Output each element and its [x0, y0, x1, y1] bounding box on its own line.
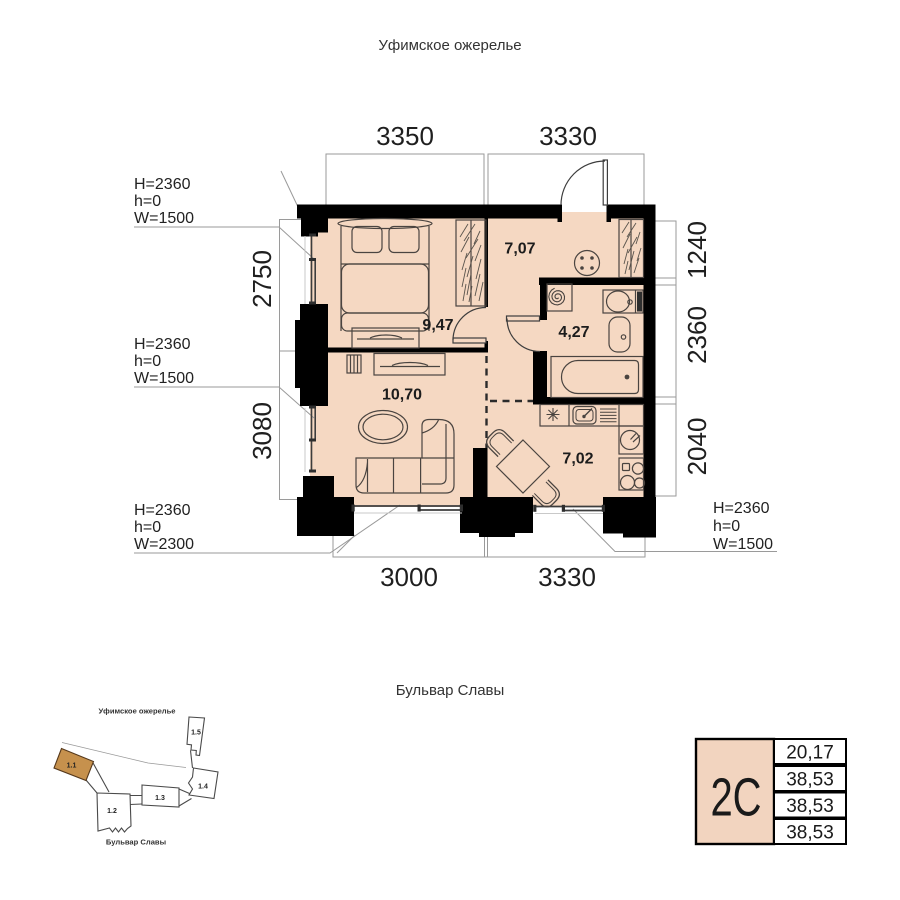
- svg-text:1.4: 1.4: [198, 784, 208, 791]
- svg-text:3330: 3330: [538, 562, 596, 592]
- svg-text:Уфимское ожерелье: Уфимское ожерелье: [378, 37, 521, 54]
- svg-text:h=0: h=0: [134, 193, 161, 210]
- svg-text:H=2360: H=2360: [134, 502, 191, 519]
- svg-text:Уфимское ожерелье: Уфимское ожерелье: [98, 707, 175, 716]
- svg-text:h=0: h=0: [713, 518, 740, 535]
- svg-text:W=1500: W=1500: [713, 536, 773, 553]
- svg-text:7,07: 7,07: [504, 241, 535, 258]
- svg-text:2750: 2750: [247, 250, 277, 308]
- svg-text:2040: 2040: [682, 418, 712, 476]
- svg-text:h=0: h=0: [134, 353, 161, 370]
- svg-text:2360: 2360: [682, 306, 712, 364]
- svg-text:38,53: 38,53: [786, 770, 834, 791]
- svg-text:1240: 1240: [682, 221, 712, 279]
- svg-text:4,27: 4,27: [558, 324, 589, 341]
- svg-text:9,47: 9,47: [422, 317, 453, 334]
- svg-text:10,70: 10,70: [382, 387, 422, 404]
- svg-text:1.1: 1.1: [67, 763, 77, 770]
- svg-text:1.3: 1.3: [155, 795, 165, 802]
- svg-text:H=2360: H=2360: [713, 500, 770, 517]
- svg-text:1.5: 1.5: [191, 730, 201, 737]
- svg-text:20,17: 20,17: [786, 743, 834, 764]
- svg-text:38,53: 38,53: [786, 823, 834, 844]
- svg-text:38,53: 38,53: [786, 796, 834, 817]
- svg-text:3000: 3000: [380, 562, 438, 592]
- svg-text:3080: 3080: [247, 402, 277, 460]
- svg-text:3330: 3330: [539, 121, 597, 151]
- svg-text:W=1500: W=1500: [134, 210, 194, 227]
- svg-text:1.2: 1.2: [107, 808, 117, 815]
- svg-text:H=2360: H=2360: [134, 176, 191, 193]
- svg-text:3350: 3350: [376, 121, 434, 151]
- svg-text:2C: 2C: [710, 768, 761, 828]
- svg-text:Бульвар Славы: Бульвар Славы: [106, 838, 166, 847]
- svg-text:W=2300: W=2300: [134, 536, 194, 553]
- svg-text:H=2360: H=2360: [134, 336, 191, 353]
- svg-text:Бульвар Славы: Бульвар Славы: [396, 682, 505, 699]
- svg-text:h=0: h=0: [134, 519, 161, 536]
- svg-text:7,02: 7,02: [562, 451, 593, 468]
- svg-text:W=1500: W=1500: [134, 370, 194, 387]
